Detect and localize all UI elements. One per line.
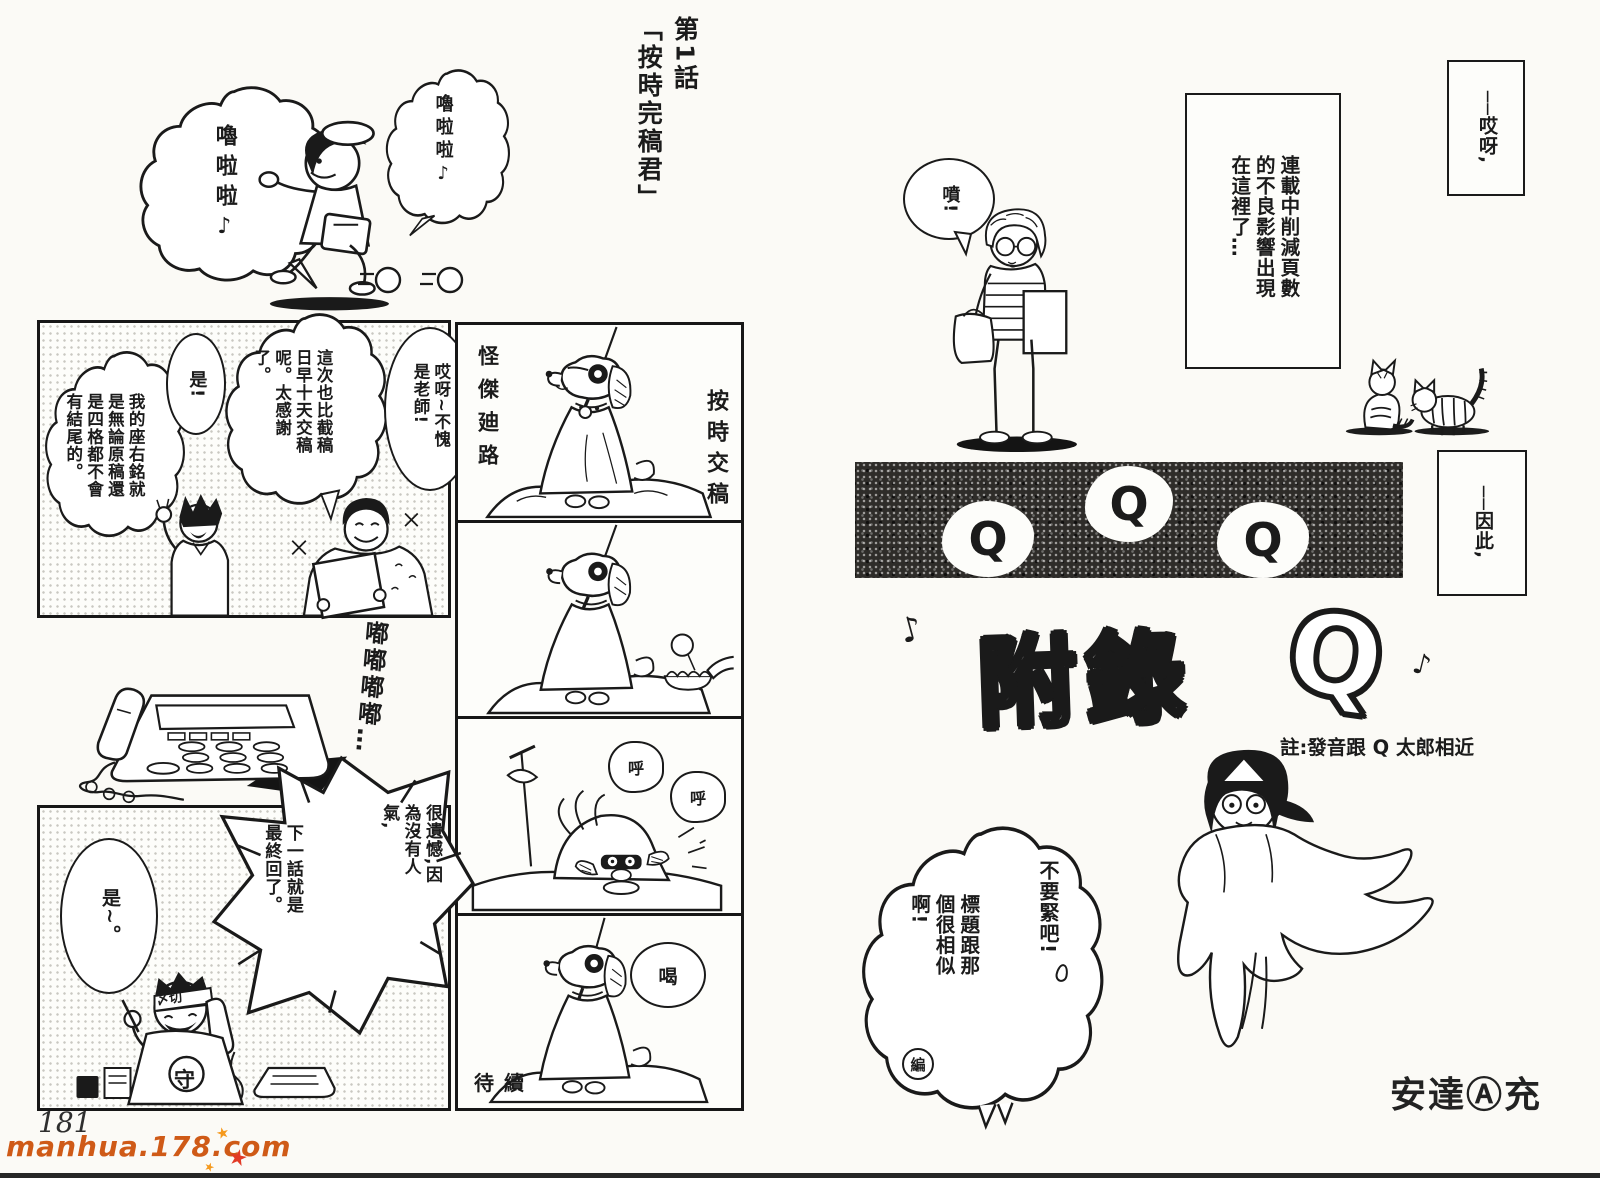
to-be-continued-text: 待續 (474, 1067, 534, 1096)
phone-voice-bubble: 很遺憾,因為沒有人氣, 下一話就是最終回了。 (208, 752, 476, 1040)
star-icon (226, 1144, 251, 1173)
call-popularity-text: 很遺憾,因為沒有人氣, (378, 804, 442, 884)
greeting-text: 哎呀~不愧是老師! (409, 363, 451, 455)
q-letter: Q (968, 512, 1007, 566)
dog-knight-offered-food-illustration (458, 523, 735, 713)
q-blob-1: Q (942, 501, 1034, 577)
breath-sfx-text: 呼 (628, 755, 644, 779)
yes-text: 是! (185, 370, 208, 398)
ghost-character-illustration (1115, 742, 1447, 1078)
narration-caption-box: 連載中削減頁數的不良影響出現在這裡了… (1185, 93, 1341, 369)
spiky-bubble-shape (208, 752, 476, 1040)
music-note-icon: ♪ (895, 608, 926, 652)
hum-text: 嚕啦啦♪ (431, 94, 454, 189)
strip-panel-4: 喝 待續 (455, 913, 744, 1111)
two-cats-illustration (1338, 352, 1495, 438)
yes-bubble: 是! (166, 333, 226, 435)
sigh-caption-text: ──哎呀, (1474, 91, 1498, 164)
editor-cloud-bubble: 不要緊吧! 標題跟那個很相似啊! 編 (860, 820, 1102, 1128)
similar-title-text: 標題跟那個很相似啊! (906, 894, 980, 984)
breath-puff-2: 呼 (670, 771, 726, 823)
no-worries-text: 不要緊吧! (1035, 860, 1060, 972)
breath-sfx-text: 呼 (690, 785, 706, 809)
call-final-text: 下一話就是最終回了。 (260, 824, 303, 918)
dog-knight-illustration (458, 325, 735, 517)
thus-caption-box: ──因此, (1437, 450, 1527, 596)
chapter-title: 第1話 「按時完稿君」 (630, 16, 703, 236)
shout-bubble: 喝 (630, 942, 706, 1008)
appendix-title-text: 附錄 (976, 598, 1197, 747)
music-note-icon: ♪ (1409, 646, 1434, 682)
speed-puffs-illustration (358, 262, 483, 307)
page-bottom-edge (0, 1173, 1600, 1178)
narration-caption-text: 連載中削減頁數的不良影響出現在這裡了… (1226, 155, 1300, 307)
q-banner: Q Q Q (855, 462, 1403, 578)
appendix-title-q: Q (1279, 586, 1391, 728)
q-blob-3: Q (1217, 502, 1309, 578)
watermark-url: manhua.178.com (6, 1130, 292, 1163)
deadline-headband-text: 〆切 (155, 986, 183, 1008)
editor-mark: 編 (902, 1048, 934, 1080)
strip-panel-3: 呼 呼 (455, 716, 744, 919)
hum-text: 嚕啦啦♪ (210, 124, 238, 247)
q-letter: Q (1109, 477, 1148, 531)
sigh-caption-box: ──哎呀, (1447, 60, 1525, 196)
panel-visit: 我的座右銘就是無論原稿還是四格都不會有結尾的。 是! 這次也比截稿日早十天交稿呢… (37, 320, 451, 618)
editor-mark-text: 編 (910, 1054, 925, 1075)
author-and-editor-illustration (84, 483, 444, 617)
thanks-text: 這次也比截稿日早十天交稿呢。太感謝了。 (250, 349, 333, 457)
author-signature: 安達Ⓐ充 (1390, 1066, 1542, 1118)
yes-text-2: 是~。 (97, 888, 121, 945)
strip-panel-1: 怪傑廸路 按時交稿 (455, 322, 744, 526)
strip-panel-2 (455, 520, 744, 722)
breath-puff-1: 呼 (608, 741, 664, 793)
shout-sfx-text: 喝 (658, 962, 677, 989)
star-icon (214, 1123, 231, 1144)
thus-caption-text: ──因此, (1470, 486, 1494, 559)
standing-author-illustration (933, 202, 1091, 454)
manga-spread: 第1話 「按時完稿君」 嚕啦啦♪ 嚕啦啦♪ (0, 0, 1600, 1178)
q-letter: Q (1243, 513, 1282, 567)
shirt-badge-text: 守 (174, 1064, 195, 1094)
q-blob-2: Q (1085, 466, 1173, 542)
